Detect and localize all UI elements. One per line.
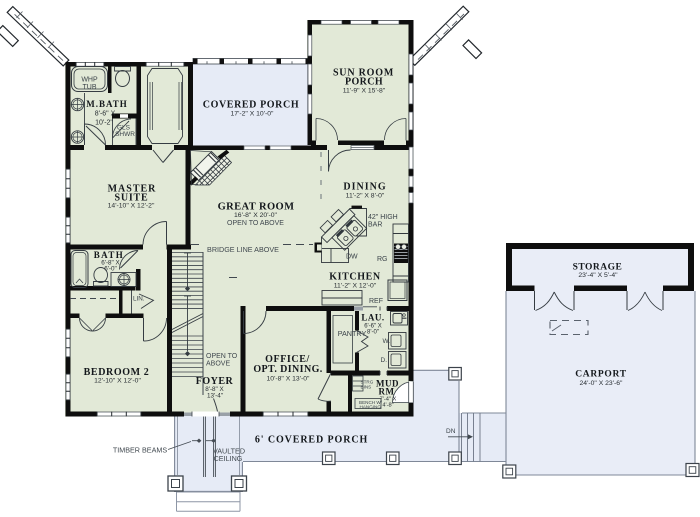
svg-text:10'-2": 10'-2" (95, 120, 113, 127)
svg-text:LAU.: LAU. (361, 313, 384, 323)
svg-text:24'-0" X 23'-6": 24'-0" X 23'-6" (580, 380, 624, 387)
svg-text:DN: DN (446, 428, 456, 435)
svg-text:OPEN TO ABOVE: OPEN TO ABOVE (227, 220, 284, 227)
svg-text:CEILING: CEILING (214, 454, 243, 463)
svg-text:OPEN TO: OPEN TO (206, 353, 238, 360)
svg-text:13'-4": 13'-4" (207, 393, 223, 400)
svg-text:23'-4" X 5'-4": 23'-4" X 5'-4" (578, 272, 618, 279)
svg-text:8'-6" X: 8'-6" X (95, 111, 116, 118)
svg-text:11'-2" X 12'-0": 11'-2" X 12'-0" (334, 283, 377, 290)
svg-text:BATH: BATH (94, 250, 124, 260)
svg-text:ABOVE: ABOVE (206, 361, 230, 368)
svg-text:14'-10" X 12'-2": 14'-10" X 12'-2" (108, 203, 155, 210)
svg-text:BINS: BINS (361, 385, 372, 390)
svg-text:17'-2" X 10'-0": 17'-2" X 10'-0" (231, 111, 275, 118)
svg-text:6' COVERED PORCH: 6' COVERED PORCH (255, 435, 368, 446)
svg-text:PORCH: PORCH (345, 77, 383, 88)
svg-text:GREAT ROOM: GREAT ROOM (218, 202, 295, 213)
svg-text:16'-8" X 20'-0": 16'-8" X 20'-0" (234, 212, 278, 219)
svg-text:SHWR: SHWR (115, 131, 135, 138)
svg-text:TUB: TUB (83, 84, 97, 91)
svg-text:LIN.: LIN. (133, 296, 145, 303)
svg-text:WHP: WHP (81, 77, 98, 84)
svg-text:6'-0": 6'-0" (104, 266, 117, 273)
svg-text:CARPORT: CARPORT (575, 370, 627, 380)
svg-text:10'-8" X 13'-0": 10'-8" X 13'-0" (267, 376, 311, 383)
svg-text:PANTRY: PANTRY (338, 329, 367, 338)
svg-text:DW: DW (346, 254, 358, 261)
svg-text:REF: REF (369, 298, 383, 305)
svg-text:TIMBER BEAMS: TIMBER BEAMS (113, 446, 168, 455)
svg-text:DINING: DINING (343, 182, 386, 193)
svg-text:11'-9" X 15'-8": 11'-9" X 15'-8" (343, 88, 386, 95)
svg-text:RM: RM (379, 387, 395, 397)
svg-text:BEDROOM 2: BEDROOM 2 (84, 367, 150, 378)
svg-text:HANGING: HANGING (360, 405, 382, 410)
svg-text:12'-10" X 12'-0": 12'-10" X 12'-0" (94, 378, 141, 385)
svg-text:42" HIGH: 42" HIGH (368, 214, 398, 221)
svg-text:D.: D. (381, 357, 388, 364)
svg-text:4'-8": 4'-8" (382, 403, 393, 409)
svg-text:STORAGE: STORAGE (573, 263, 623, 273)
svg-text:M.BATH: M.BATH (86, 99, 128, 109)
svg-text:KITCHEN: KITCHEN (329, 272, 381, 283)
svg-text:8'-0": 8'-0" (367, 330, 379, 336)
svg-text:BAR: BAR (368, 222, 382, 229)
svg-text:RG: RG (377, 256, 388, 263)
svg-text:W.: W. (383, 338, 391, 345)
svg-text:11'-2" X 8'-0": 11'-2" X 8'-0" (346, 193, 385, 200)
svg-text:BRIDGE LINE ABOVE: BRIDGE LINE ABOVE (207, 245, 279, 254)
svg-text:COVERED PORCH: COVERED PORCH (203, 100, 299, 111)
svg-text:OPT. DINING.: OPT. DINING. (253, 364, 322, 375)
